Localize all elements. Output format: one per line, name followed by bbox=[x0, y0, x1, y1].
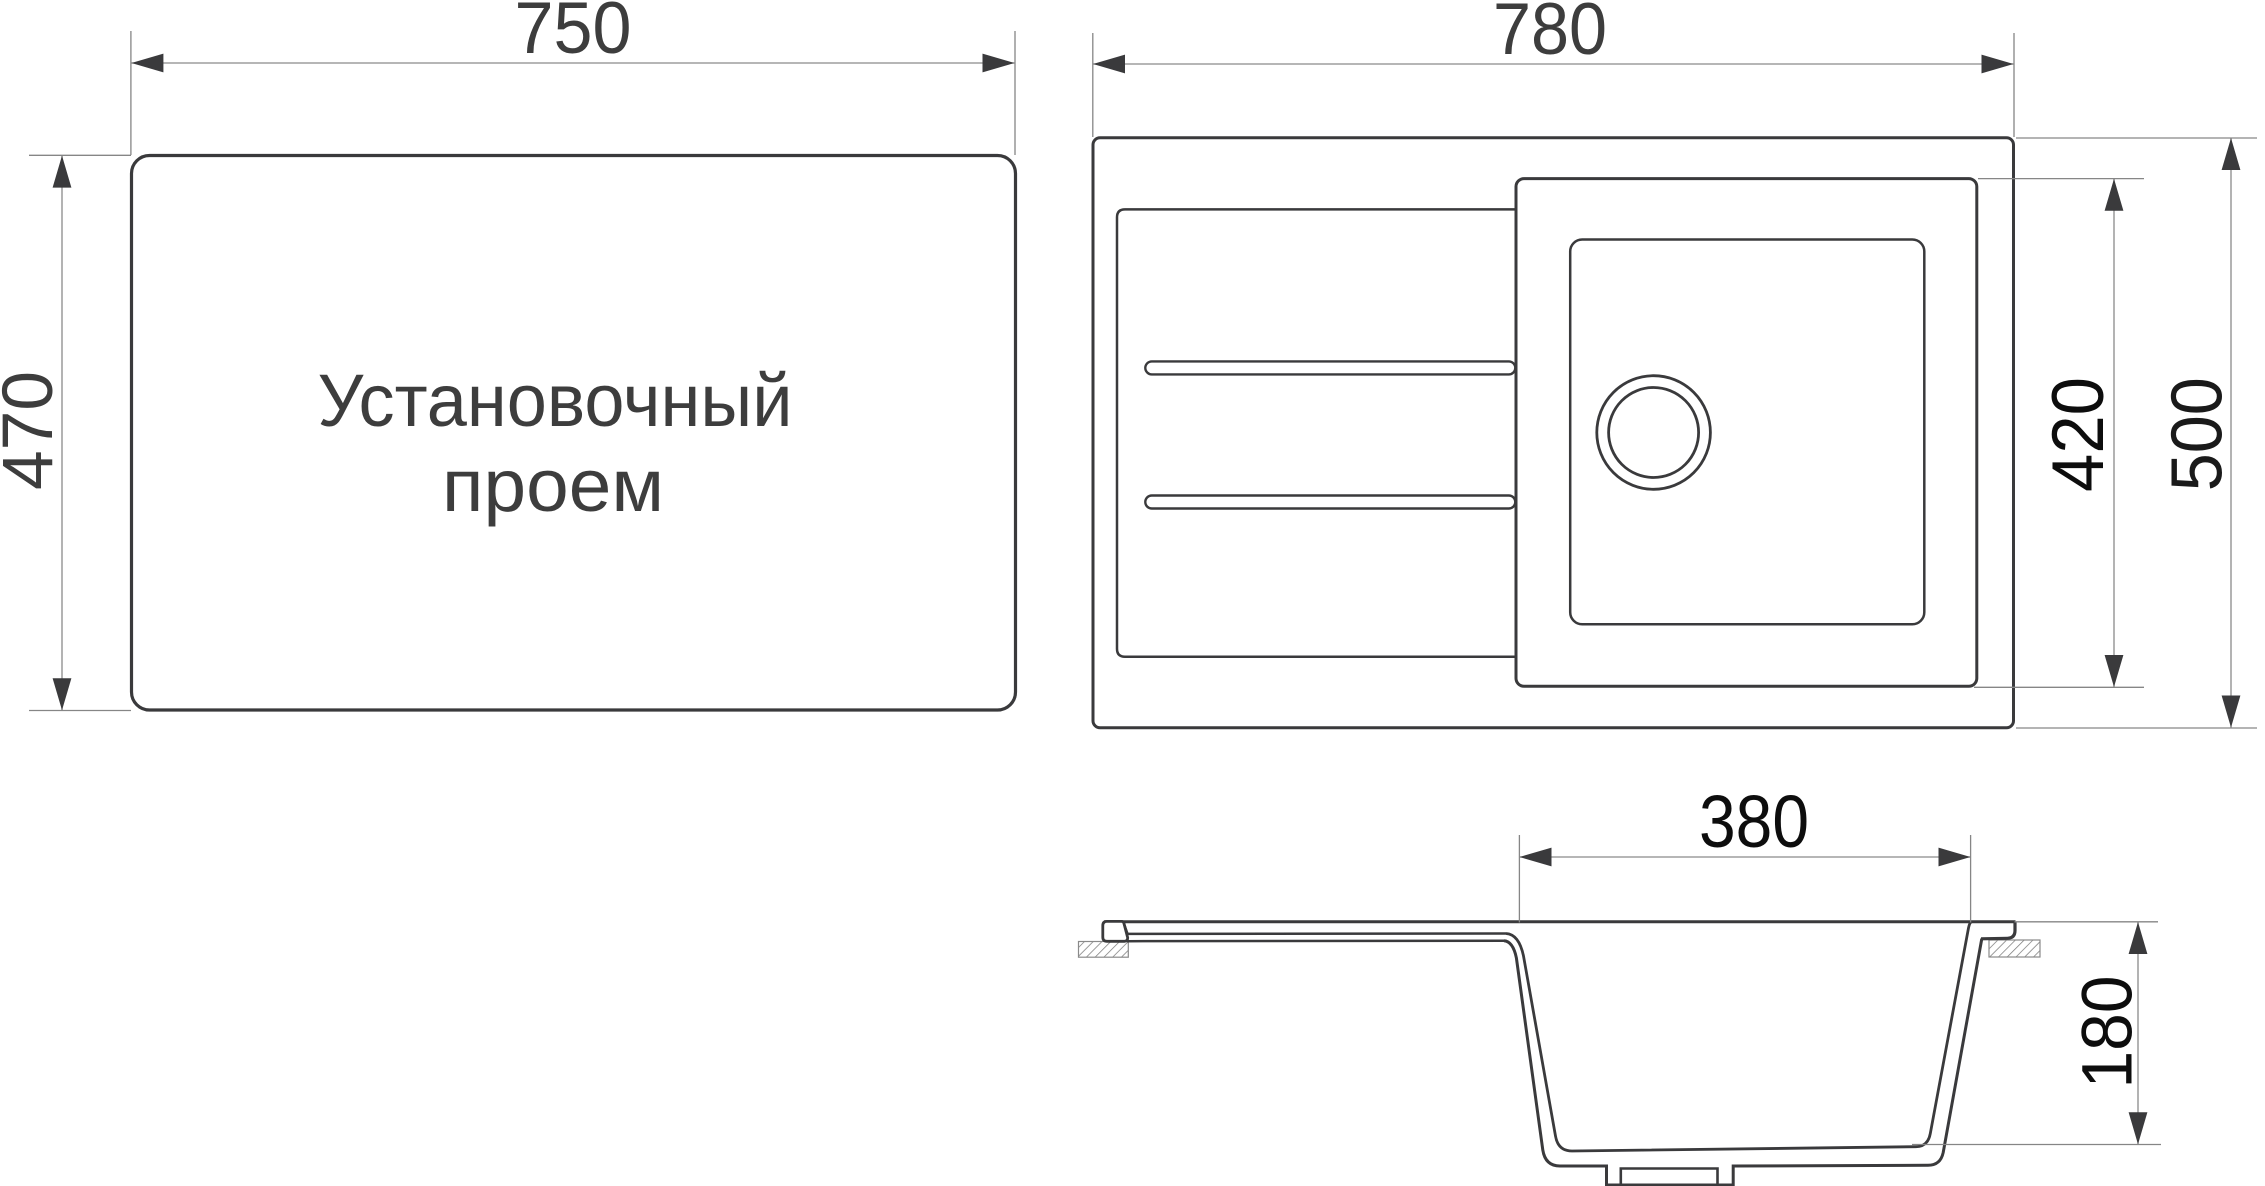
svg-text:750: 750 bbox=[515, 0, 632, 69]
svg-text:380: 380 bbox=[1699, 780, 1809, 863]
svg-text:проем: проем bbox=[442, 444, 664, 527]
svg-text:180: 180 bbox=[2069, 976, 2148, 1089]
svg-text:500: 500 bbox=[2158, 377, 2238, 491]
svg-text:Установочный: Установочный bbox=[318, 359, 793, 442]
svg-text:420: 420 bbox=[2038, 377, 2119, 492]
svg-text:470: 470 bbox=[0, 371, 68, 490]
svg-text:780: 780 bbox=[1493, 0, 1607, 70]
